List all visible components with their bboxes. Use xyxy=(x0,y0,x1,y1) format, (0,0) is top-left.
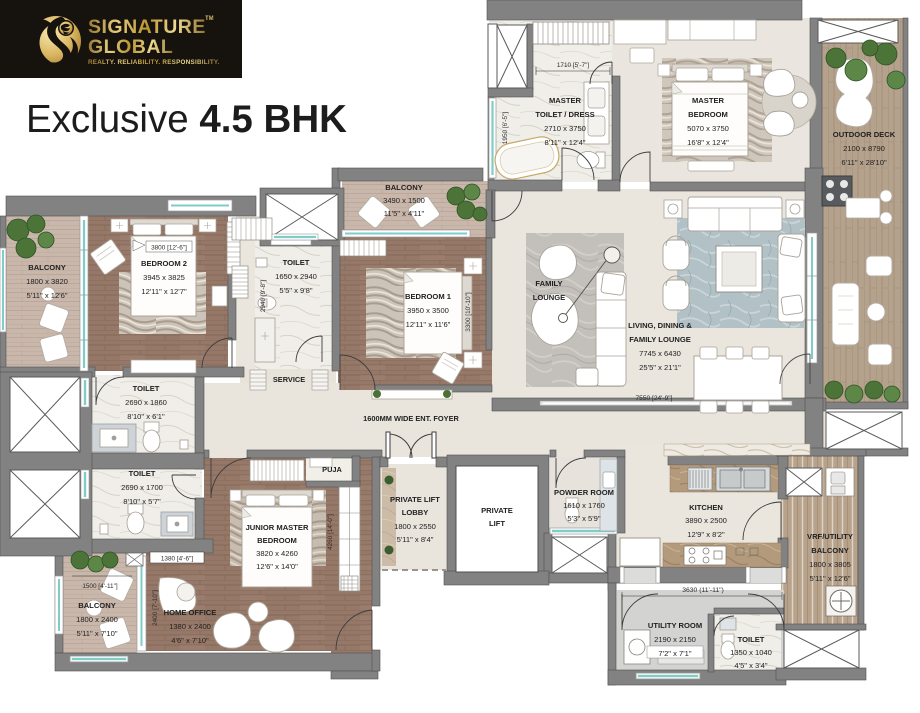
svg-text:1610 x 1760: 1610 x 1760 xyxy=(563,501,605,510)
svg-text:2100 x 8790: 2100 x 8790 xyxy=(843,144,885,153)
svg-text:JUNIOR MASTER: JUNIOR MASTER xyxy=(246,523,309,532)
svg-text:MASTER: MASTER xyxy=(549,96,582,105)
svg-text:8'10" x 6'1": 8'10" x 6'1" xyxy=(127,412,165,421)
svg-text:3800 [12'-6"]: 3800 [12'-6"] xyxy=(151,245,187,252)
svg-text:GLOBAL: GLOBAL xyxy=(88,36,173,58)
svg-text:SERVICE: SERVICE xyxy=(273,375,305,384)
svg-text:1950 [6'-5"]: 1950 [6'-5"] xyxy=(502,112,509,144)
svg-text:TOILET: TOILET xyxy=(738,635,765,644)
svg-text:5070 x 3750: 5070 x 3750 xyxy=(687,124,729,133)
svg-text:5'11" x 12'6": 5'11" x 12'6" xyxy=(809,574,850,583)
svg-text:LIVING, DINING &: LIVING, DINING & xyxy=(628,321,692,330)
svg-text:25'5" x 21'1": 25'5" x 21'1" xyxy=(639,363,681,372)
svg-text:5'11" x 12'6": 5'11" x 12'6" xyxy=(26,291,67,300)
svg-text:VRF/UTILITY: VRF/UTILITY xyxy=(807,532,853,541)
svg-text:REALTY. RELIABILITY. RESPONSIB: REALTY. RELIABILITY. RESPONSIBILITY. xyxy=(88,59,220,66)
svg-text:BALCONY: BALCONY xyxy=(78,601,116,610)
svg-text:FAMILY: FAMILY xyxy=(535,279,562,288)
svg-text:POWDER ROOM: POWDER ROOM xyxy=(554,488,614,497)
svg-text:1710 [5'-7"]: 1710 [5'-7"] xyxy=(557,62,589,69)
svg-text:PUJA: PUJA xyxy=(322,465,342,474)
svg-text:8'10" x 5'7": 8'10" x 5'7" xyxy=(123,497,161,506)
svg-text:16'8" x 12'4": 16'8" x 12'4" xyxy=(687,138,729,147)
svg-text:KITCHEN: KITCHEN xyxy=(689,503,723,512)
svg-text:SIGNATURE: SIGNATURE xyxy=(88,16,206,38)
svg-text:TOILET / DRESS: TOILET / DRESS xyxy=(535,110,594,119)
svg-text:UTILITY ROOM: UTILITY ROOM xyxy=(648,621,702,630)
svg-text:LIFT: LIFT xyxy=(489,519,505,528)
svg-text:2940 [9'-8"]: 2940 [9'-8"] xyxy=(260,280,267,312)
svg-text:3950 x 3500: 3950 x 3500 xyxy=(407,306,449,315)
svg-text:1380 [4'-6"]: 1380 [4'-6"] xyxy=(161,556,193,563)
svg-text:BALCONY: BALCONY xyxy=(811,546,849,555)
svg-text:3630 (11'-11"): 3630 (11'-11") xyxy=(682,587,724,594)
svg-text:BEDROOM: BEDROOM xyxy=(257,536,297,545)
svg-text:1650 x 2940: 1650 x 2940 xyxy=(275,272,317,281)
svg-text:OUTDOOR DECK: OUTDOOR DECK xyxy=(833,130,896,139)
svg-text:3945 x 3825: 3945 x 3825 xyxy=(143,273,185,282)
svg-text:7745 x 6430: 7745 x 6430 xyxy=(639,349,681,358)
svg-text:3300 [10'-10"]: 3300 [10'-10"] xyxy=(465,292,472,332)
svg-text:Exclusive 4.5 BHK: Exclusive 4.5 BHK xyxy=(26,98,347,141)
svg-text:1800 x 3820: 1800 x 3820 xyxy=(26,277,68,286)
svg-text:4260 [14'-0"]: 4260 [14'-0"] xyxy=(327,514,334,550)
svg-text:2690 x 1700: 2690 x 1700 xyxy=(121,483,163,492)
svg-text:7'2" x 7'1": 7'2" x 7'1" xyxy=(658,649,692,658)
svg-text:2190 x 2150: 2190 x 2150 xyxy=(654,635,696,644)
svg-text:BEDROOM 1: BEDROOM 1 xyxy=(405,292,452,301)
svg-text:FAMILY LOUNGE: FAMILY LOUNGE xyxy=(629,335,691,344)
svg-text:4'5" x 3'4": 4'5" x 3'4" xyxy=(734,661,768,670)
svg-text:MASTER: MASTER xyxy=(692,96,725,105)
svg-text:3890 x 2500: 3890 x 2500 xyxy=(685,516,727,525)
svg-text:TM: TM xyxy=(205,16,214,22)
svg-text:2710 x 3750: 2710 x 3750 xyxy=(544,124,586,133)
svg-text:8'11" x 12'4": 8'11" x 12'4" xyxy=(544,138,585,147)
svg-text:1800 x 3805: 1800 x 3805 xyxy=(809,560,851,569)
svg-text:LOBBY: LOBBY xyxy=(402,508,429,517)
svg-text:2690 x 1860: 2690 x 1860 xyxy=(125,398,167,407)
svg-text:TOILET: TOILET xyxy=(283,258,310,267)
svg-text:BALCONY: BALCONY xyxy=(385,183,423,192)
svg-text:5'3" x 5'9": 5'3" x 5'9" xyxy=(567,514,601,523)
svg-text:1500 [4'-11"]: 1500 [4'-11"] xyxy=(82,583,118,590)
svg-text:4'6" x 7'10": 4'6" x 7'10" xyxy=(171,636,209,645)
svg-text:1600MM WIDE ENT. FOYER: 1600MM WIDE ENT. FOYER xyxy=(363,414,459,423)
svg-text:TOILET: TOILET xyxy=(133,384,160,393)
svg-text:3490 x 1500: 3490 x 1500 xyxy=(383,196,425,205)
svg-text:BEDROOM: BEDROOM xyxy=(688,110,728,119)
svg-text:12'11" x 11'6": 12'11" x 11'6" xyxy=(406,320,451,329)
svg-text:7550 [24'-9"]: 7550 [24'-9"] xyxy=(636,395,673,402)
svg-text:TOILET: TOILET xyxy=(129,469,156,478)
svg-text:1800 x 2550: 1800 x 2550 xyxy=(394,522,436,531)
svg-text:BEDROOM 2: BEDROOM 2 xyxy=(141,259,187,268)
svg-text:LOUNGE: LOUNGE xyxy=(533,293,566,302)
svg-text:1800 x 2400: 1800 x 2400 xyxy=(76,615,118,624)
svg-text:5'11" x 8'4": 5'11" x 8'4" xyxy=(397,535,434,544)
svg-text:PRIVATE: PRIVATE xyxy=(481,506,513,515)
svg-text:BALCONY: BALCONY xyxy=(28,263,66,272)
svg-text:5'11" x 7'10": 5'11" x 7'10" xyxy=(76,629,117,638)
svg-text:PRIVATE LIFT: PRIVATE LIFT xyxy=(390,495,440,504)
svg-text:12'11" x 12'7": 12'11" x 12'7" xyxy=(141,287,187,296)
svg-text:2400 [7'-10"]: 2400 [7'-10"] xyxy=(152,590,159,626)
svg-text:11'5" x 4'11": 11'5" x 4'11" xyxy=(384,209,425,218)
svg-text:1350 x 1040: 1350 x 1040 xyxy=(730,648,772,657)
svg-text:12'9" x 8'2": 12'9" x 8'2" xyxy=(687,530,725,539)
svg-text:1380 x 2400: 1380 x 2400 xyxy=(169,622,211,631)
svg-text:HOME OFFICE: HOME OFFICE xyxy=(164,608,217,617)
svg-text:5'5" x 9'8": 5'5" x 9'8" xyxy=(279,286,313,295)
svg-text:3820 x 4260: 3820 x 4260 xyxy=(256,549,298,558)
svg-text:12'6" x 14'0": 12'6" x 14'0" xyxy=(256,562,298,571)
svg-text:6'11" x 28'10": 6'11" x 28'10" xyxy=(841,158,887,167)
